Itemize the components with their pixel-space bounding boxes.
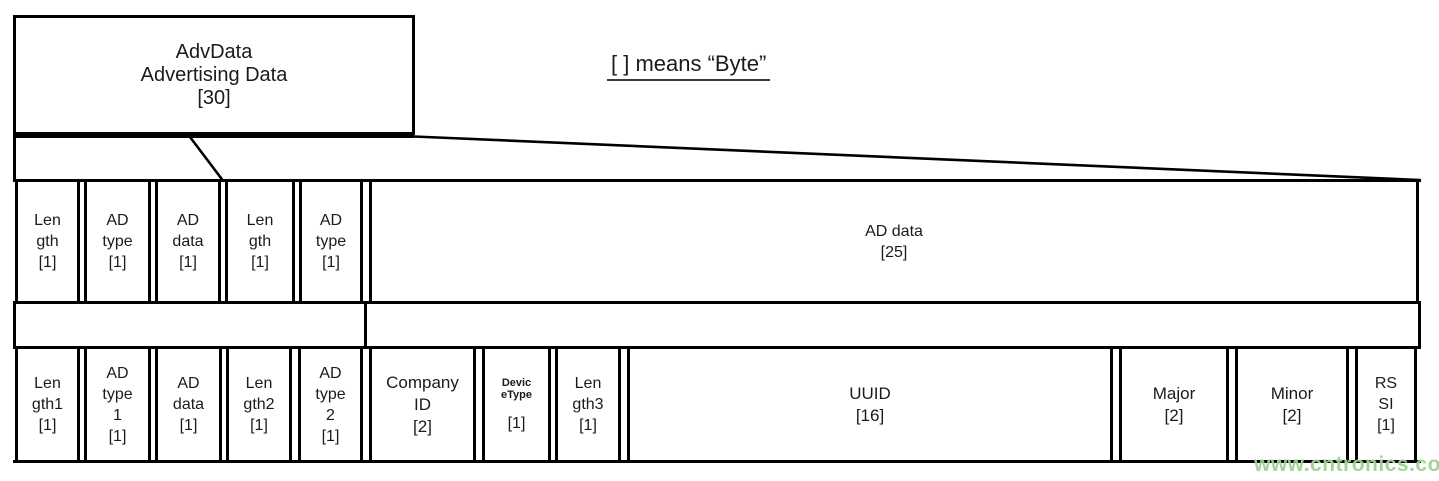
cell-device-type: Devic eType [1] <box>482 346 551 463</box>
cell-ad-type-2nd: AD type [1] <box>299 179 363 304</box>
device-type-bytes: [1] <box>508 415 526 433</box>
watermark: www.cntronics.com <box>1254 453 1439 477</box>
cell-length2: Len gth2 [1] <box>226 346 292 463</box>
diagram-canvas: AdvData Advertising Data [30] [ ] means … <box>0 0 1439 481</box>
byte-legend: [ ] means “Byte” <box>607 52 770 81</box>
device-type-label: Devic eType <box>501 377 532 401</box>
cell-length-2nd: Len gth [1] <box>225 179 295 304</box>
cell-uuid: UUID [16] <box>627 346 1113 463</box>
advdata-box: AdvData Advertising Data [30] <box>13 15 415 135</box>
cell-length3: Len gth3 [1] <box>555 346 621 463</box>
cell-ad-type2: AD type 2 [1] <box>298 346 363 463</box>
advdata-label: AdvData Advertising Data [30] <box>141 41 288 110</box>
expansion-diagonal-left <box>190 137 223 180</box>
cell-major: Major [2] <box>1119 346 1229 463</box>
cell-ad-type: AD type [1] <box>84 179 151 304</box>
cell-ad-type1: AD type 1 [1] <box>84 346 151 463</box>
cell-length: Len gth [1] <box>15 179 80 304</box>
cell-length1: Len gth1 [1] <box>15 346 80 463</box>
expansion-diagonal-right <box>414 137 1420 181</box>
cell-ad-data: AD data [1] <box>155 179 221 304</box>
cell-company-id: Company ID [2] <box>369 346 476 463</box>
cell-rssi: RS SI [1] <box>1355 346 1417 463</box>
cell-ad-data-b: AD data [1] <box>155 346 222 463</box>
cell-ad-data-25: AD data [25] <box>369 179 1419 304</box>
cell-minor: Minor [2] <box>1235 346 1349 463</box>
